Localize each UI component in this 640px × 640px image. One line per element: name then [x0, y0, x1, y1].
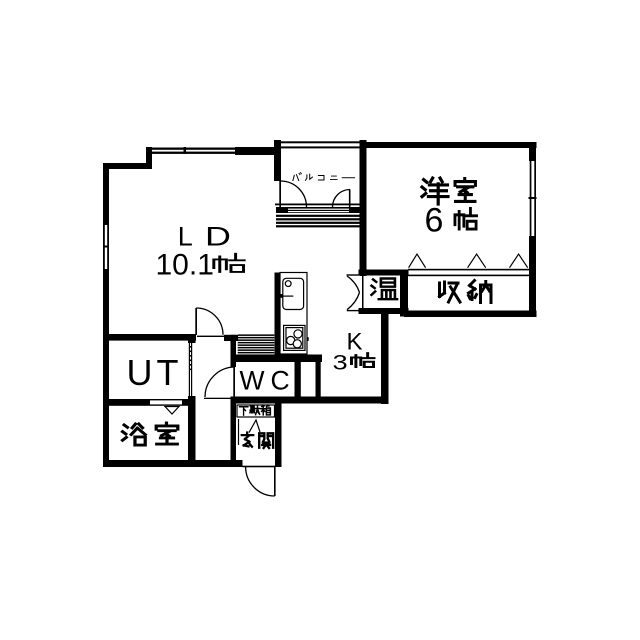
svg-text:6: 6: [425, 202, 444, 240]
svg-text:K: K: [347, 329, 363, 356]
svg-text:D: D: [205, 221, 231, 252]
svg-text:WC: WC: [240, 366, 296, 396]
svg-text:UT: UT: [127, 352, 183, 393]
svg-text:10.1: 10.1: [156, 249, 214, 282]
svg-text:L: L: [178, 222, 193, 252]
svg-text:3: 3: [333, 351, 348, 374]
